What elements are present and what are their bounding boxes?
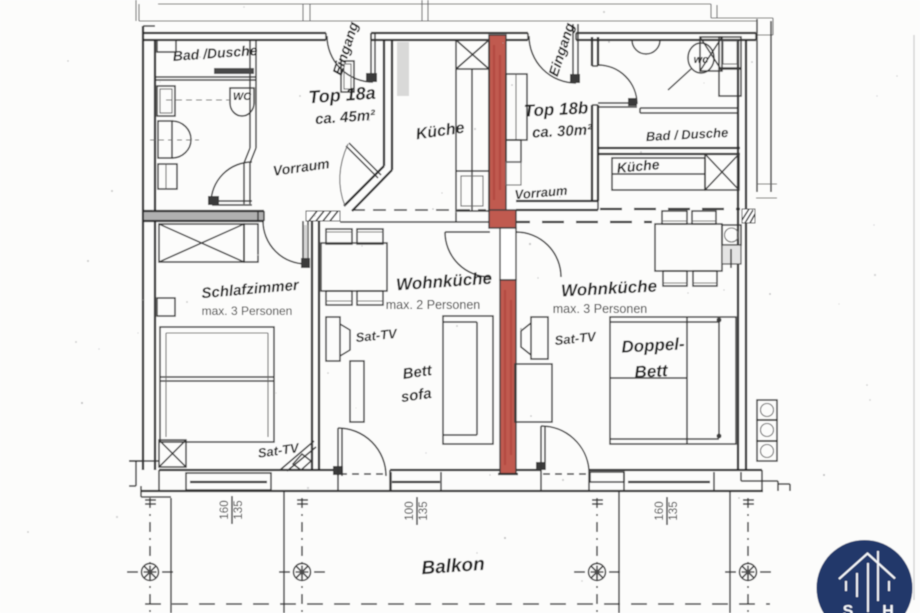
svg-text:S: S <box>843 603 854 613</box>
svg-text:135: 135 <box>418 501 430 520</box>
svg-text:H: H <box>882 603 894 613</box>
svg-text:160: 160 <box>219 500 231 519</box>
svg-text:Top 18b: Top 18b <box>523 98 588 120</box>
svg-text:max. 3 Personen: max. 3 Personen <box>202 304 293 318</box>
svg-text:135: 135 <box>233 500 245 519</box>
svg-text:160: 160 <box>654 501 666 520</box>
svg-text:max. 3 Personen: max. 3 Personen <box>553 302 648 316</box>
svg-text:Balkon: Balkon <box>421 554 486 579</box>
svg-text:WC: WC <box>233 91 252 103</box>
svg-text:wc: wc <box>694 54 709 66</box>
svg-text:ca. 30m²: ca. 30m² <box>532 121 594 141</box>
svg-text:135: 135 <box>668 501 680 520</box>
svg-text:Doppel-: Doppel- <box>621 334 686 356</box>
svg-text:100: 100 <box>404 501 416 520</box>
svg-text:max. 2 Personen: max. 2 Personen <box>386 298 481 312</box>
